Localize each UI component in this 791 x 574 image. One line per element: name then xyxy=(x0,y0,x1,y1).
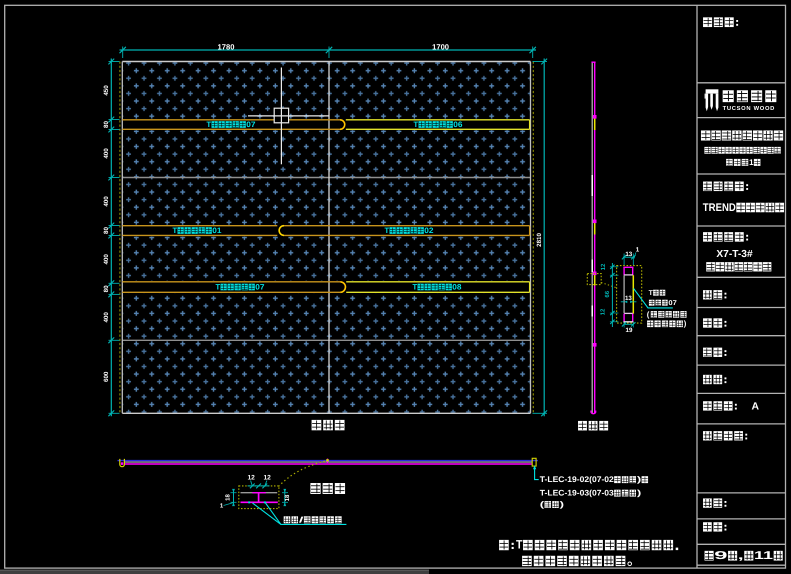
svg-text:80: 80 xyxy=(103,285,110,292)
svg-text:): ) xyxy=(637,489,642,498)
svg-text:07: 07 xyxy=(668,300,677,307)
svg-text:12: 12 xyxy=(600,263,607,270)
svg-text:450: 450 xyxy=(103,85,110,96)
svg-text:T-LEC-19-02(07-02: T-LEC-19-02(07-02 xyxy=(540,475,615,484)
svg-text:400: 400 xyxy=(103,148,110,159)
svg-text:07: 07 xyxy=(255,282,264,291)
svg-text:X7-T-3#: X7-T-3# xyxy=(716,249,753,260)
svg-text:18: 18 xyxy=(225,494,232,501)
svg-text:TUCSON WOOD: TUCSON WOOD xyxy=(723,105,775,112)
svg-text:TREND: TREND xyxy=(703,202,736,214)
svg-text:T-LEC-19-03(07-03: T-LEC-19-03(07-03 xyxy=(540,489,615,498)
svg-text:80: 80 xyxy=(103,227,110,234)
svg-text:,: , xyxy=(738,550,744,562)
svg-text:1700: 1700 xyxy=(432,42,449,51)
svg-text:12: 12 xyxy=(599,308,606,315)
svg-text:T: T xyxy=(385,226,390,235)
svg-text:400: 400 xyxy=(103,254,110,265)
svg-text:66: 66 xyxy=(604,290,611,297)
svg-text:1: 1 xyxy=(636,247,640,254)
svg-text:400: 400 xyxy=(103,312,110,323)
svg-text:1: 1 xyxy=(749,158,754,167)
svg-text:T: T xyxy=(414,120,419,129)
svg-text:T: T xyxy=(413,282,418,291)
svg-text:(: ( xyxy=(647,310,650,319)
svg-text:): ) xyxy=(684,319,687,328)
svg-text:12: 12 xyxy=(264,475,272,482)
svg-text:06: 06 xyxy=(453,120,463,129)
svg-text:): ) xyxy=(560,500,565,509)
svg-text:T: T xyxy=(216,282,221,291)
svg-text:07: 07 xyxy=(246,120,255,129)
svg-text:400: 400 xyxy=(103,196,110,207)
svg-text:1780: 1780 xyxy=(218,42,235,51)
svg-text:08: 08 xyxy=(452,282,462,291)
svg-text:18: 18 xyxy=(284,494,291,501)
svg-text:02: 02 xyxy=(424,226,434,235)
svg-text:11: 11 xyxy=(754,550,773,562)
svg-text:19: 19 xyxy=(626,327,633,334)
svg-text:(: ( xyxy=(540,500,545,509)
svg-text:T: T xyxy=(516,538,523,552)
svg-text:): ) xyxy=(637,475,642,484)
svg-text:80: 80 xyxy=(103,121,110,128)
svg-text:T: T xyxy=(207,120,212,129)
svg-text:T: T xyxy=(173,226,178,235)
svg-text:01: 01 xyxy=(212,226,222,235)
svg-text:A: A xyxy=(752,402,760,413)
svg-text:600: 600 xyxy=(103,371,110,382)
svg-text:9: 9 xyxy=(714,550,727,562)
svg-text:2810: 2810 xyxy=(536,233,543,247)
svg-text:13: 13 xyxy=(625,295,632,302)
svg-text:13: 13 xyxy=(625,251,632,258)
svg-text:12: 12 xyxy=(248,475,256,482)
